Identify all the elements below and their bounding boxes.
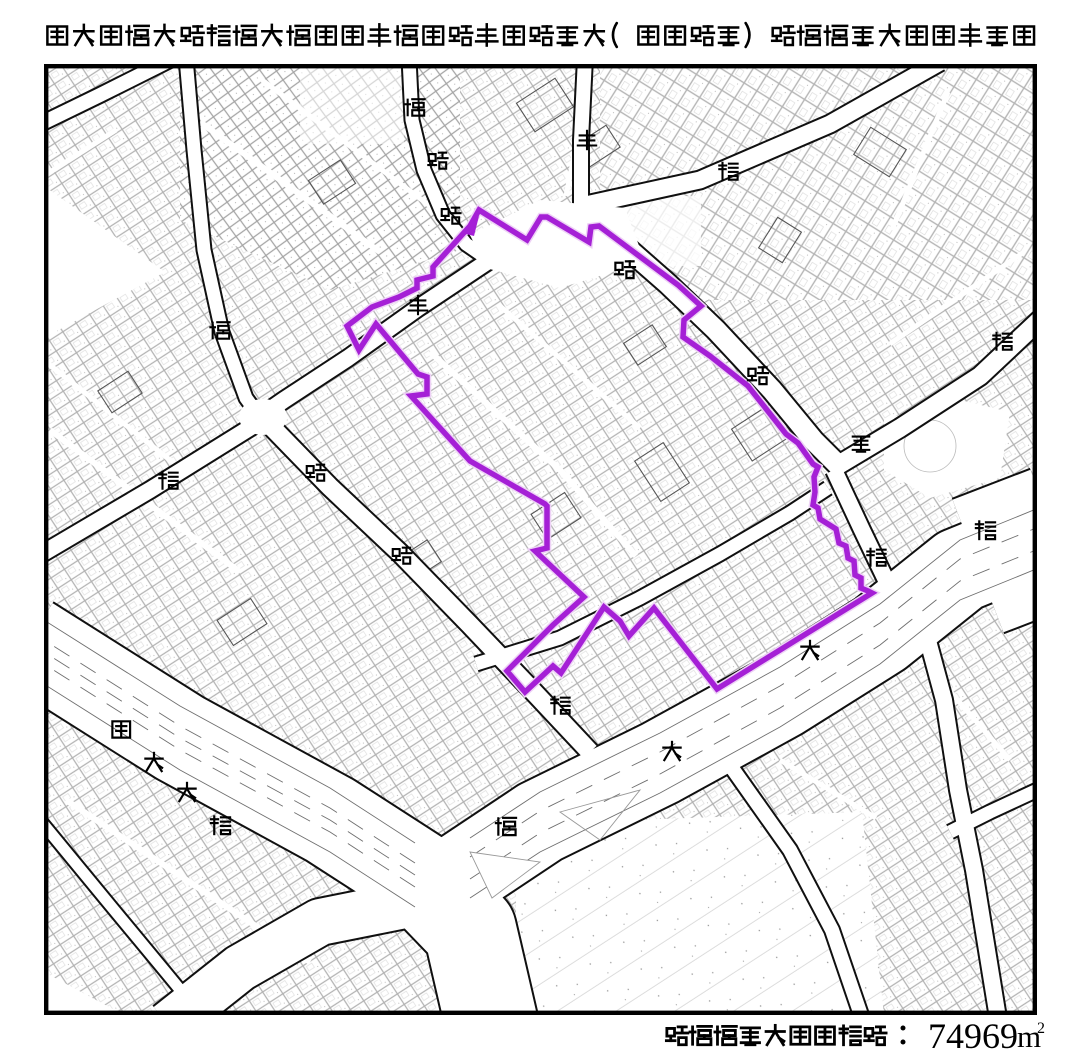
svg-text:74969: 74969	[928, 1016, 1018, 1056]
svg-text:2: 2	[1037, 1020, 1045, 1037]
